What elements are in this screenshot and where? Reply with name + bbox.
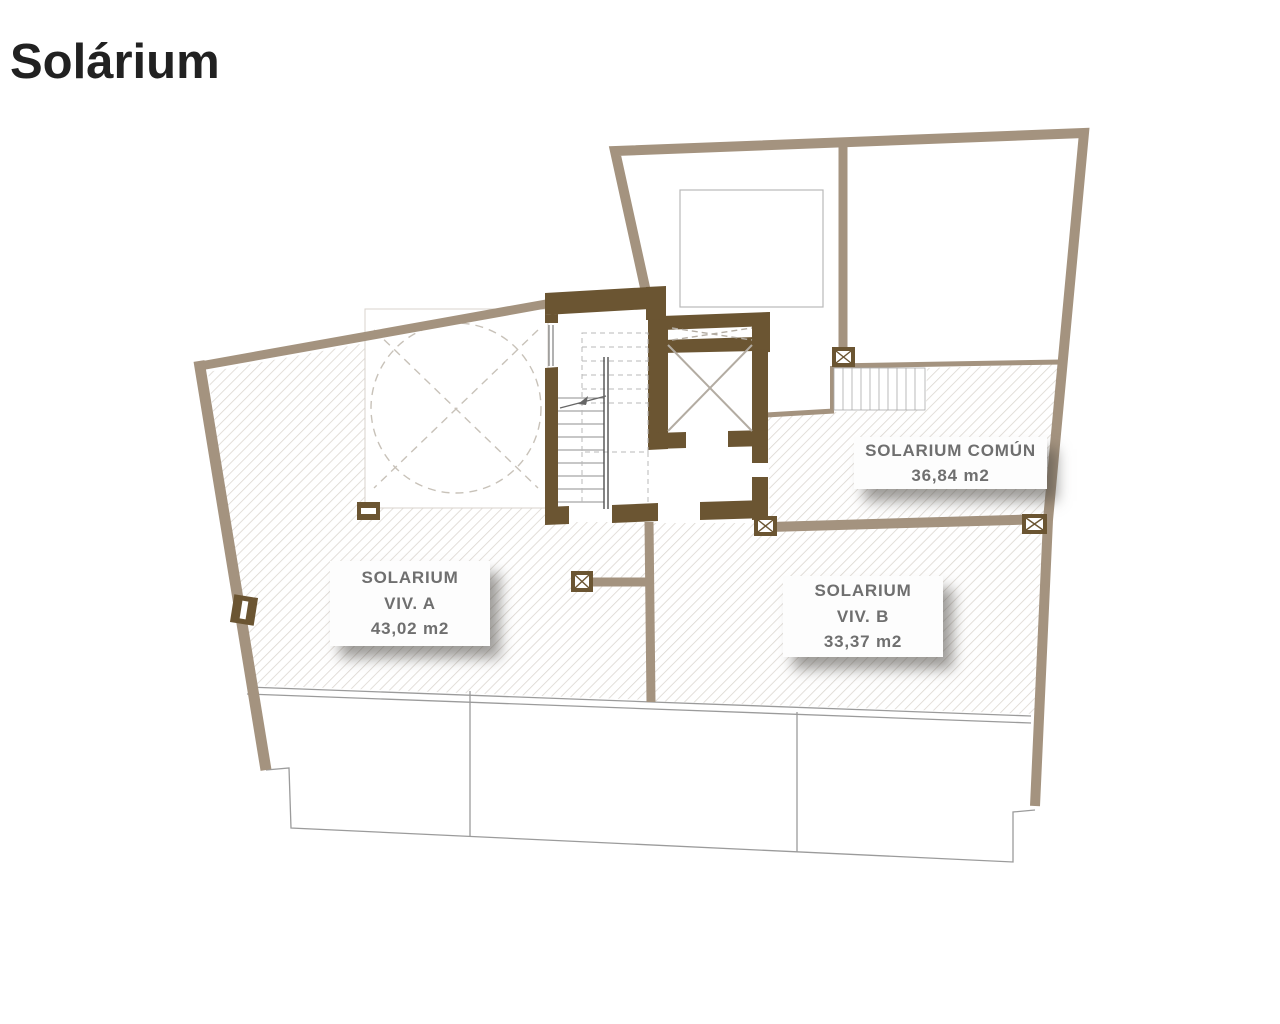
area-label-comun: SOLARIUM COMÚN 36,84 m2 [854,437,1047,489]
skylight-outline [680,190,823,307]
area-label-line: SOLARIUM [783,578,943,604]
lower-roof-outline [247,687,1035,862]
area-label-line: VIV. A [330,591,490,617]
page-title: Solárium [10,34,220,90]
area-label-line: 33,37 m2 [783,629,943,655]
area-label-line: SOLARIUM COMÚN [854,438,1047,464]
area-label-line: 36,84 m2 [854,463,1047,489]
comun-steps [834,368,925,410]
roof-opening-marker [365,309,548,508]
area-label-viv-a: SOLARIUM VIV. A 43,02 m2 [330,561,490,646]
floor-plan-canvas [0,0,1280,1024]
core-window [549,325,553,366]
area-label-line: VIV. B [783,604,943,630]
stairwell [558,333,648,509]
elevator-shaft [668,345,752,431]
area-label-viv-b: SOLARIUM VIV. B 33,37 m2 [783,576,943,657]
area-label-line: 43,02 m2 [330,616,490,642]
area-label-line: SOLARIUM [330,565,490,591]
floor-plan-page: Solárium SOLARIUM VIV. A 43,02 m2 SOLARI… [0,0,1280,1024]
